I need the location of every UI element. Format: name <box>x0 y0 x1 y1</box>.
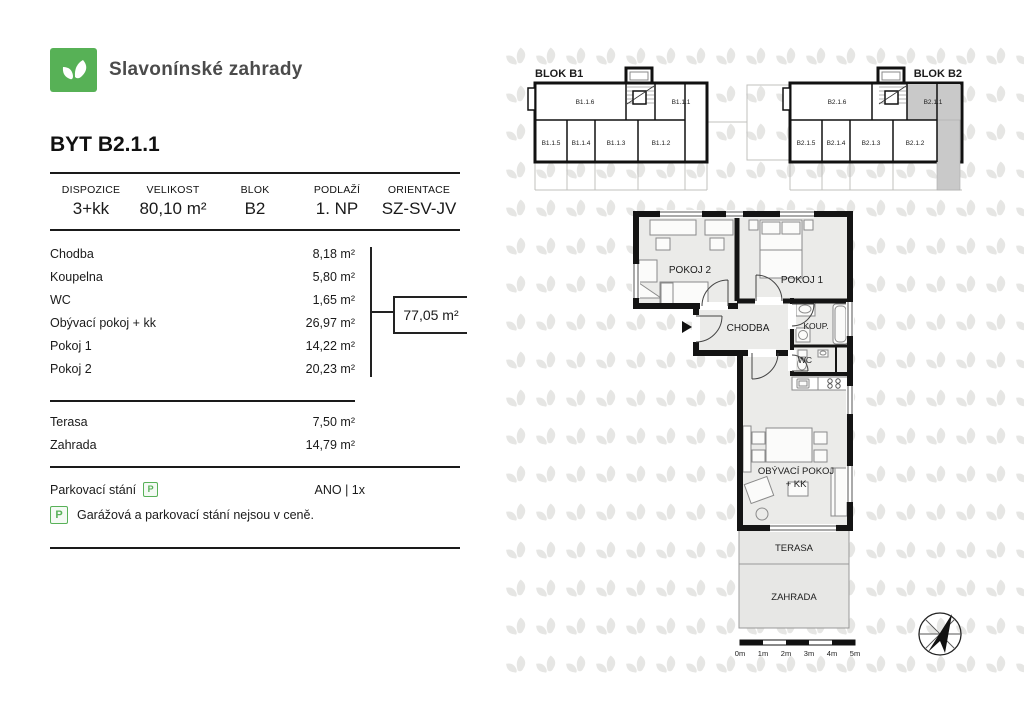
highlighted-unit-b211-garden <box>937 120 960 190</box>
unit-label-b112: B1.1.2 <box>652 140 671 147</box>
outdoor-name: Zahrada <box>50 434 97 457</box>
scale-label-5m: 5m <box>850 649 860 658</box>
brand-name: Slavonínské zahrady <box>109 59 303 81</box>
parking-note-icon: P <box>50 506 68 524</box>
spec-podlazi: PODLAŽÍ 1. NP <box>296 184 378 219</box>
unit-label-b116: B1.1.6 <box>576 99 595 106</box>
unit-label-b115: B1.1.5 <box>542 140 561 147</box>
outdoor-list: Terasa 7,50 m² Zahrada 14,79 m² <box>50 400 355 457</box>
room-area: 8,18 m² <box>313 243 355 266</box>
room-label-pokoj2: POKOJ 2 <box>669 265 712 276</box>
scale-label-3m: 3m <box>804 649 814 658</box>
room-name: Koupelna <box>50 266 103 289</box>
scale-label-4m: 4m <box>827 649 837 658</box>
room-label-zahrada: ZAHRADA <box>771 592 817 603</box>
room-row: Chodba 8,18 m² <box>50 243 355 266</box>
plans-canvas: BLOK B1 B1.1.6 B1.1.1 B1.1.5 B1.1.4 B1.1… <box>500 40 1024 690</box>
leaf-logo-icon <box>50 48 97 92</box>
room-area: 26,97 m² <box>306 312 355 335</box>
info-panel: Slavonínské zahrady BYT B2.1.1 DISPOZICE… <box>50 40 460 680</box>
unit-label-b113: B1.1.3 <box>607 140 626 147</box>
spec-table: DISPOZICE 3+kk VELIKOST 80,10 m² BLOK B2… <box>50 172 460 231</box>
unit-label-b213: B2.1.3 <box>862 140 881 147</box>
apartment-datasheet: Slavonínské zahrady BYT B2.1.1 DISPOZICE… <box>0 0 1024 723</box>
unit-label-b212: B2.1.2 <box>906 140 925 147</box>
outdoor-name: Terasa <box>50 411 88 434</box>
page-title: BYT B2.1.1 <box>50 133 160 157</box>
room-name: Pokoj 1 <box>50 335 92 358</box>
parking-icon: P <box>143 482 158 497</box>
room-name: Pokoj 2 <box>50 358 92 381</box>
brand: Slavonínské zahrady <box>50 48 303 92</box>
room-area: 5,80 m² <box>313 266 355 289</box>
scale-label-2m: 2m <box>781 649 791 658</box>
room-row: WC 1,65 m² <box>50 289 355 312</box>
outdoor-area: 14,79 m² <box>306 434 355 457</box>
scale-label-1m: 1m <box>758 649 768 658</box>
parking-label: Parkovací stání <box>50 483 136 497</box>
room-label-obyvaci-2: + KK <box>786 479 808 490</box>
spec-orientace: ORIENTACE SZ-SV-JV <box>378 184 460 219</box>
outdoor-row: Zahrada 14,79 m² <box>50 434 355 457</box>
area-bracket-tick <box>370 311 394 313</box>
room-name: Obývací pokoj + kk <box>50 312 156 335</box>
spec-velikost: VELIKOST 80,10 m² <box>132 184 214 219</box>
block-b2-label: BLOK B2 <box>914 68 962 80</box>
parking-row: Parkovací stání P ANO | 1x <box>50 482 365 497</box>
unit-label-b216: B2.1.6 <box>828 99 847 106</box>
room-area: 14,22 m² <box>306 335 355 358</box>
spec-blok: BLOK B2 <box>214 184 296 219</box>
outdoor-row: Terasa 7,50 m² <box>50 411 355 434</box>
room-label-wc: WC <box>798 355 812 365</box>
room-name: WC <box>50 289 71 312</box>
room-row: Pokoj 2 20,23 m² <box>50 358 355 381</box>
parking-note-text: Garážová a parkovací stání nejsou v ceně… <box>77 508 314 522</box>
room-name: Chodba <box>50 243 94 266</box>
outdoor-area: 7,50 m² <box>313 411 355 434</box>
block-b1-label: BLOK B1 <box>535 68 583 80</box>
unit-label-b214: B2.1.4 <box>827 140 846 147</box>
room-label-pokoj1: POKOJ 1 <box>781 275 824 286</box>
total-area-value: 77,05 m² <box>403 307 458 323</box>
unit-label-b114: B1.1.4 <box>572 140 591 147</box>
parking-value: ANO | 1x <box>315 483 365 497</box>
unit-label-b211: B2.1.1 <box>924 99 943 106</box>
unit-label-b111: B1.1.1 <box>672 99 691 106</box>
scale-label-0m: 0m <box>735 649 745 658</box>
room-area: 1,65 m² <box>313 289 355 312</box>
room-area: 20,23 m² <box>306 358 355 381</box>
room-label-terasa: TERASA <box>775 543 814 554</box>
parking-section: Parkovací stání P ANO | 1x P Garážová a … <box>50 466 460 549</box>
spec-dispozice: DISPOZICE 3+kk <box>50 184 132 219</box>
parking-label-wrap: Parkovací stání P <box>50 482 158 497</box>
unit-label-b215: B2.1.5 <box>797 140 816 147</box>
room-row: Pokoj 1 14,22 m² <box>50 335 355 358</box>
room-label-obyvaci-1: OBÝVACÍ POKOJ <box>758 466 835 477</box>
total-area-box: 77,05 m² <box>393 296 467 334</box>
room-label-koup: KOUP. <box>803 321 828 331</box>
room-list: Chodba 8,18 m² Koupelna 5,80 m² WC 1,65 … <box>50 243 355 381</box>
parking-note: P Garážová a parkovací stání nejsou v ce… <box>50 506 460 524</box>
room-row: Obývací pokoj + kk 26,97 m² <box>50 312 355 335</box>
room-row: Koupelna 5,80 m² <box>50 266 355 289</box>
room-label-chodba: CHODBA <box>727 323 770 334</box>
